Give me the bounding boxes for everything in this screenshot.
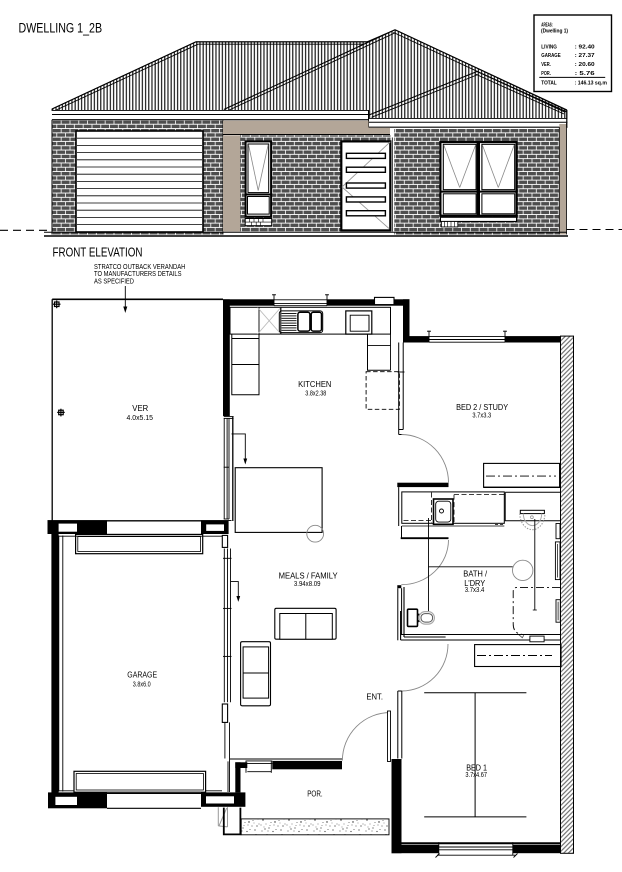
svg-text:4.0x5.15: 4.0x5.15	[127, 415, 154, 422]
svg-text:: 27.37: : 27.37	[575, 53, 595, 59]
svg-text:3.7x3.4: 3.7x3.4	[465, 587, 485, 594]
svg-text:3.7x4.67: 3.7x4.67	[465, 772, 487, 779]
svg-text:LIVING: LIVING	[541, 45, 557, 51]
svg-text:3.7x3.3: 3.7x3.3	[472, 413, 491, 420]
svg-text:KITCHEN: KITCHEN	[298, 379, 331, 389]
svg-text:AS SPECIFIED: AS SPECIFIED	[94, 276, 134, 285]
svg-text:: 92.40: : 92.40	[575, 45, 595, 51]
svg-text:GARAGE: GARAGE	[127, 670, 157, 680]
svg-text:POR.: POR.	[541, 71, 551, 77]
svg-text:: 146.13 sq.m: : 146.13 sq.m	[575, 81, 608, 87]
svg-text:DWELLING 1_2B: DWELLING 1_2B	[19, 21, 103, 37]
svg-text:BED 1: BED 1	[466, 762, 487, 772]
svg-text:(Dwelling 1): (Dwelling 1)	[541, 28, 568, 34]
svg-text:ENT.: ENT.	[366, 691, 383, 701]
svg-text:3.94x8.09: 3.94x8.09	[294, 581, 321, 588]
svg-text:VER: VER	[132, 403, 148, 413]
svg-text:3.8x6.0: 3.8x6.0	[133, 682, 151, 689]
svg-text:: 20.60: : 20.60	[575, 62, 595, 68]
svg-text:: 5.76: : 5.76	[575, 71, 595, 77]
svg-text:GARAGE: GARAGE	[541, 53, 561, 59]
svg-text:MEALS / FAMILY: MEALS / FAMILY	[279, 570, 338, 580]
svg-text:FRONT ELEVATION: FRONT ELEVATION	[53, 246, 143, 260]
svg-text:VER.: VER.	[541, 62, 551, 68]
svg-text:AREAS:: AREAS:	[541, 22, 553, 28]
svg-text:TOTAL: TOTAL	[541, 81, 557, 87]
svg-text:3.8x2.38: 3.8x2.38	[305, 390, 326, 397]
svg-text:BED 2 / STUDY: BED 2 / STUDY	[456, 402, 508, 412]
svg-text:POR.: POR.	[307, 788, 323, 798]
